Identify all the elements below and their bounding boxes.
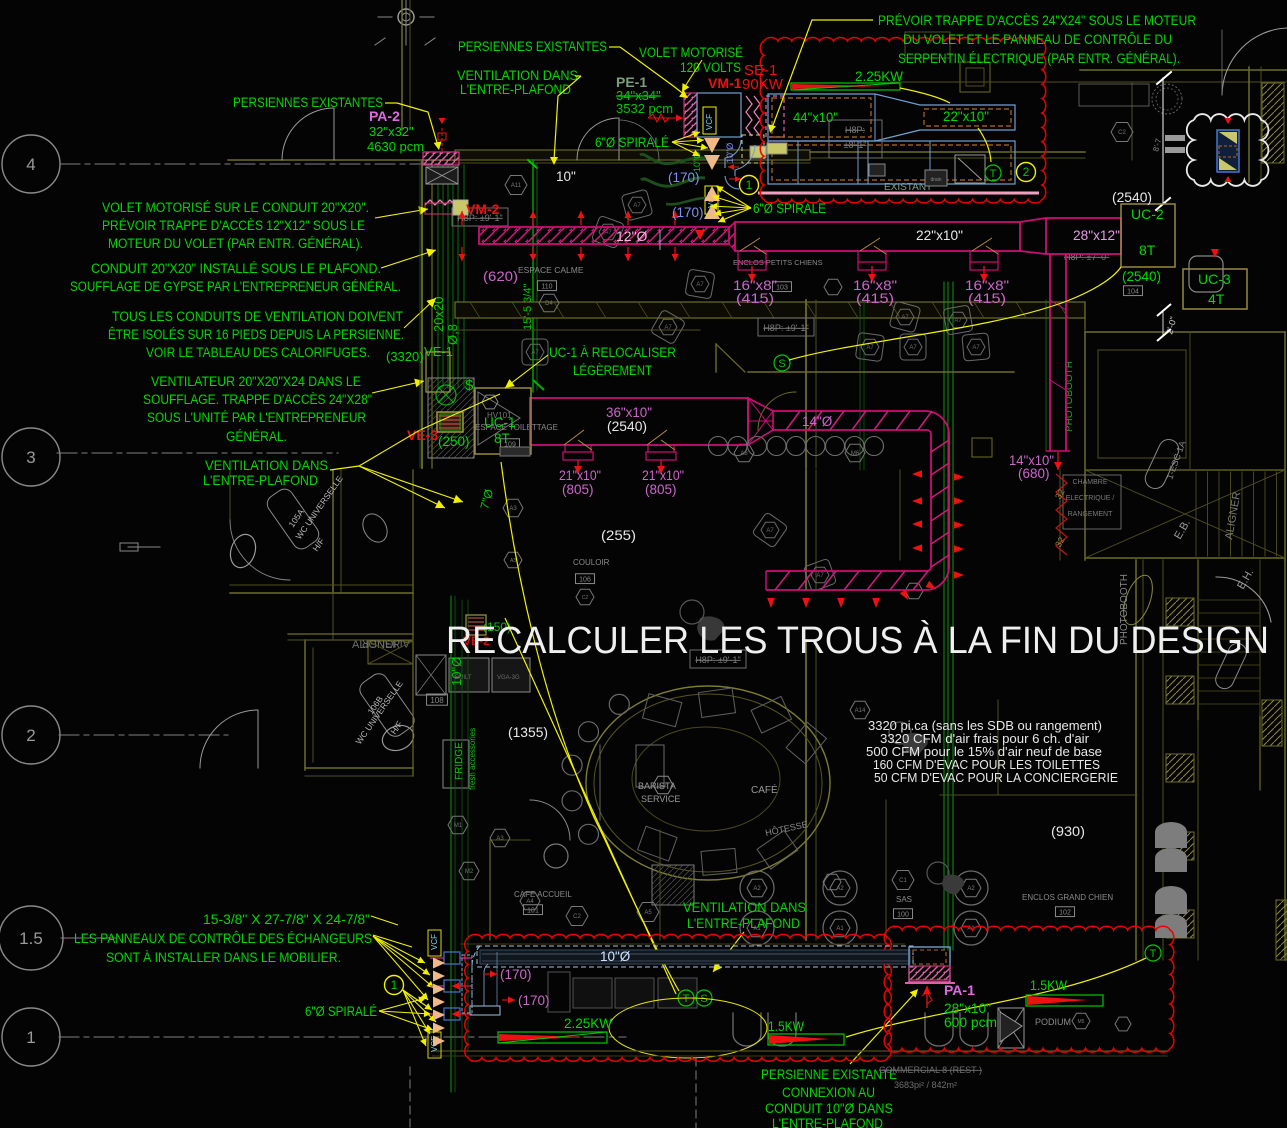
svg-text:L'ENTRE-PLAFOND: L'ENTRE-PLAFOND xyxy=(203,473,318,488)
svg-text:fresh accessories: fresh accessories xyxy=(468,728,477,790)
svg-text:D4: D4 xyxy=(545,301,553,307)
svg-text:VENTILATION DANS: VENTILATION DANS xyxy=(457,68,578,83)
svg-text:ESPACE CALME: ESPACE CALME xyxy=(518,265,584,275)
svg-text:L'ENTRE-PLAFOND: L'ENTRE-PLAFOND xyxy=(772,1116,883,1128)
svg-text:T: T xyxy=(990,168,997,180)
svg-text:CONDUIT 10"Ø DANS: CONDUIT 10"Ø DANS xyxy=(765,1101,893,1116)
svg-text:2.25KW: 2.25KW xyxy=(855,69,903,84)
svg-text:UC-1 À RELOCALISER: UC-1 À RELOCALISER xyxy=(549,345,676,360)
svg-text:8T: 8T xyxy=(1139,242,1156,258)
svg-text:6"Ø SPIRALE: 6"Ø SPIRALE xyxy=(753,201,826,216)
svg-text:RANGEMENT: RANGEMENT xyxy=(1068,511,1113,518)
svg-text:22"x10": 22"x10" xyxy=(943,109,989,124)
svg-text:10"Ø: 10"Ø xyxy=(600,949,631,964)
svg-text:SONT À INSTALLER DANS LE MOBIL: SONT À INSTALLER DANS LE MOBILIER. xyxy=(106,950,341,965)
svg-text:1.5KW: 1.5KW xyxy=(1030,978,1067,993)
svg-text:ELECTRIQUE /: ELECTRIQUE / xyxy=(1066,495,1115,502)
svg-text:VENTILATEUR 20"X20"X24 DANS LE: VENTILATEUR 20"X20"X24 DANS LE xyxy=(151,374,361,389)
svg-text:(170): (170) xyxy=(500,967,532,982)
svg-text:RECALCULER LES TROUS À LA FIN: RECALCULER LES TROUS À LA FIN DU DESIGN xyxy=(446,619,1269,662)
svg-text:A7: A7 xyxy=(816,573,824,579)
svg-text:A3: A3 xyxy=(509,506,517,512)
svg-text:4: 4 xyxy=(26,155,35,174)
svg-text:10": 10" xyxy=(556,169,576,184)
svg-text:108: 108 xyxy=(430,696,444,705)
svg-text:VOLET MOTORISÉ SUR LE CONDUIT: VOLET MOTORISÉ SUR LE CONDUIT 20"X20". xyxy=(102,200,369,215)
svg-text:(255): (255) xyxy=(601,528,636,543)
svg-text:1.5: 1.5 xyxy=(19,929,43,948)
svg-text:(1355): (1355) xyxy=(508,725,548,740)
svg-text:6"Ø SPIRALÉ: 6"Ø SPIRALÉ xyxy=(595,135,669,150)
svg-text:PA-1: PA-1 xyxy=(944,982,975,998)
svg-text:S: S xyxy=(778,358,785,370)
svg-text:CAFE ACCUEIL: CAFE ACCUEIL xyxy=(514,890,572,899)
svg-text:PODIUM: PODIUM xyxy=(1035,1017,1071,1027)
svg-text:A7: A7 xyxy=(664,325,672,331)
svg-text:drain: drain xyxy=(930,177,941,183)
svg-text:8T: 8T xyxy=(494,431,510,446)
svg-text:A1: A1 xyxy=(836,926,844,932)
svg-text:M1: M1 xyxy=(454,823,463,829)
svg-text:2: 2 xyxy=(1023,165,1030,179)
svg-text:C2: C2 xyxy=(573,914,581,920)
svg-text:A3: A3 xyxy=(510,558,516,564)
svg-text:CONNEXION AU: CONNEXION AU xyxy=(782,1085,875,1100)
svg-text:SERPENTIN ÉLECTRIQUE (PAR ENTR: SERPENTIN ÉLECTRIQUE (PAR ENTR. GÉNÉRAL)… xyxy=(898,51,1180,66)
svg-text:ÊTRE ISOLÉS SUR 16 PIEDS DEPUI: ÊTRE ISOLÉS SUR 16 PIEDS DEPUIS LA PERSI… xyxy=(108,327,404,342)
svg-text:UC-2: UC-2 xyxy=(1131,206,1164,222)
svg-text:(415): (415) xyxy=(736,291,774,306)
svg-text:A2: A2 xyxy=(967,886,975,892)
svg-text:C2: C2 xyxy=(659,783,667,789)
svg-text:(250): (250) xyxy=(438,434,470,449)
svg-text:(2540): (2540) xyxy=(1112,190,1152,205)
svg-text:VENTILATION DANS: VENTILATION DANS xyxy=(205,458,328,473)
svg-text:TOUS LES CONDUITS DE VENTILATI: TOUS LES CONDUITS DE VENTILATION DOIVENT xyxy=(112,309,403,324)
svg-text:22"x10": 22"x10" xyxy=(916,228,963,243)
svg-text:SAS: SAS xyxy=(896,895,912,904)
svg-text:GÉNÉRAL.: GÉNÉRAL. xyxy=(226,429,287,444)
svg-text:A7: A7 xyxy=(633,203,641,209)
svg-text:VGA-3G: VGA-3G xyxy=(497,675,520,681)
svg-text:110: 110 xyxy=(541,284,552,291)
svg-text:28"x10": 28"x10" xyxy=(944,1001,991,1016)
svg-text:A11: A11 xyxy=(511,183,522,189)
svg-text:90KW: 90KW xyxy=(742,76,784,93)
svg-text:6"Ø SPIRALÉ: 6"Ø SPIRALÉ xyxy=(305,1004,377,1019)
svg-text:FRIDGE: FRIDGE xyxy=(454,742,465,780)
svg-text:A7: A7 xyxy=(696,282,704,288)
svg-text:SOUS L'UNITÉ PAR L'ENTREPRENEU: SOUS L'UNITÉ PAR L'ENTREPRENEUR xyxy=(147,410,366,425)
svg-text:UC-1: UC-1 xyxy=(484,415,516,430)
svg-text:36"x10": 36"x10" xyxy=(606,405,652,420)
svg-text:1.5KW: 1.5KW xyxy=(768,1019,804,1034)
svg-text:CHAMBRE: CHAMBRE xyxy=(1072,479,1107,486)
svg-text:SERVICE: SERVICE xyxy=(641,794,680,804)
svg-text:A14: A14 xyxy=(855,708,866,714)
svg-text:2: 2 xyxy=(26,726,35,745)
svg-text:L'ENTRE-PLAFOND: L'ENTRE-PLAFOND xyxy=(687,916,800,931)
svg-text:120 VOLTS: 120 VOLTS xyxy=(680,60,741,75)
svg-text:PERSIENNES EXISTANTES: PERSIENNES EXISTANTES xyxy=(458,39,607,54)
svg-text:M5: M5 xyxy=(1078,1019,1085,1025)
svg-text:±8'-1": ±8'-1" xyxy=(844,140,867,150)
svg-text:50 CFM D'EVAC POUR LA CONCIERG: 50 CFM D'EVAC POUR LA CONCIERGERIE xyxy=(874,770,1118,785)
svg-text:(170): (170) xyxy=(668,170,700,185)
svg-text:(680): (680) xyxy=(1018,466,1050,481)
svg-text:3: 3 xyxy=(26,448,35,467)
svg-text:ENCLOS GRAND CHIEN: ENCLOS GRAND CHIEN xyxy=(1022,893,1113,902)
svg-text:SOUFFLAGE DE GYPSE PAR L'ENTRE: SOUFFLAGE DE GYPSE PAR L'ENTREPRENEUR GÉ… xyxy=(70,279,401,294)
svg-text:VOIR LE TABLEAU DES CALORIFUGE: VOIR LE TABLEAU DES CALORIFUGES. xyxy=(146,345,370,360)
svg-text:3683pi² / 842m²: 3683pi² / 842m² xyxy=(894,1080,957,1090)
svg-text:(805): (805) xyxy=(645,482,677,497)
svg-text:CAFÉ: CAFÉ xyxy=(751,783,778,796)
svg-text:PRÉVOIR TRAPPE D'ACCÈS 24"X24": PRÉVOIR TRAPPE D'ACCÈS 24"X24" SOUS LE M… xyxy=(878,13,1196,28)
svg-text:(2540): (2540) xyxy=(1122,269,1161,284)
svg-text:102: 102 xyxy=(1059,910,1071,917)
svg-text:PRÉVOIR TRAPPE D'ACCÈS 12"X12": PRÉVOIR TRAPPE D'ACCÈS 12"X12" SOUS LE xyxy=(102,218,365,233)
svg-text:(170): (170) xyxy=(518,993,550,1008)
svg-text:15'-5 3/4": 15'-5 3/4" xyxy=(522,284,534,330)
svg-text:COMMERCIAL 8 (REST ): COMMERCIAL 8 (REST ) xyxy=(879,1065,982,1075)
svg-text:101: 101 xyxy=(527,908,539,915)
svg-text:PERSIENNE EXISTANTE: PERSIENNE EXISTANTE xyxy=(761,1067,897,1082)
svg-text:103: 103 xyxy=(776,285,788,292)
svg-text:A7: A7 xyxy=(972,345,980,351)
svg-text:PA-2: PA-2 xyxy=(369,108,400,124)
svg-text:DU VOLET ET LE PANNEAU DE CONT: DU VOLET ET LE PANNEAU DE CONTRÔLE DU xyxy=(903,32,1172,47)
svg-text:100: 100 xyxy=(897,912,909,919)
svg-text:LES PANNEAUX DE CONTRÔLE DES É: LES PANNEAUX DE CONTRÔLE DES ÉCHANGEURS xyxy=(74,931,372,946)
svg-text:10"Ø: 10"Ø xyxy=(725,143,735,163)
svg-text:C2: C2 xyxy=(1118,130,1126,136)
svg-text:A3: A3 xyxy=(496,836,504,842)
svg-text:(930): (930) xyxy=(1051,824,1085,839)
svg-text:COULOIR: COULOIR xyxy=(573,558,610,567)
svg-text:A4: A4 xyxy=(526,899,534,905)
svg-text:PERSIENNES EXISTANTES: PERSIENNES EXISTANTES xyxy=(233,95,383,110)
svg-text:(3320): (3320) xyxy=(386,349,424,364)
svg-text:(805): (805) xyxy=(562,482,594,497)
svg-text:VCF: VCF xyxy=(430,934,439,950)
svg-text:C2: C2 xyxy=(582,595,589,601)
svg-text:4630 pcm: 4630 pcm xyxy=(367,139,424,154)
svg-text:CONDUIT 20"X20" INSTALLÉ SOUS: CONDUIT 20"X20" INSTALLÉ SOUS LE PLAFOND… xyxy=(91,261,381,276)
svg-text:A7: A7 xyxy=(766,528,774,534)
svg-text:VENTILATION DANS: VENTILATION DANS xyxy=(683,900,806,915)
svg-text:SOUFFLAGE. TRAPPE D'ACCÈS 24"X: SOUFFLAGE. TRAPPE D'ACCÈS 24"X28" xyxy=(143,392,372,407)
svg-text:1: 1 xyxy=(26,1028,35,1047)
svg-text:1: 1 xyxy=(391,978,398,992)
svg-text:C1: C1 xyxy=(899,878,907,884)
svg-text:A7: A7 xyxy=(954,318,962,324)
svg-text:H8P:: H8P: xyxy=(845,125,865,135)
svg-text:L'ENTRE-PLAFOND: L'ENTRE-PLAFOND xyxy=(460,82,571,97)
svg-text:UC-3: UC-3 xyxy=(1198,271,1231,287)
svg-text:A7: A7 xyxy=(866,345,874,351)
svg-text:Ø,8: Ø,8 xyxy=(445,324,460,345)
svg-text:21"x10": 21"x10" xyxy=(642,468,684,483)
svg-text:(415): (415) xyxy=(968,291,1006,306)
svg-text:600 pcm: 600 pcm xyxy=(944,1015,997,1030)
svg-text:MOTEUR DU VOLET (PAR ENTR. GÉN: MOTEUR DU VOLET (PAR ENTR. GÉNÉRAL). xyxy=(108,236,363,251)
svg-text:(170): (170) xyxy=(672,205,704,220)
svg-text:A2: A2 xyxy=(753,886,761,892)
svg-text:T: T xyxy=(1150,948,1157,960)
svg-text:2.25KW: 2.25KW xyxy=(564,1016,612,1031)
svg-text:1: 1 xyxy=(746,178,753,192)
svg-text:T: T xyxy=(683,993,690,1005)
svg-text:VM-1: VM-1 xyxy=(708,75,742,91)
svg-text:28"x12": 28"x12" xyxy=(1073,228,1120,243)
svg-text:$: $ xyxy=(465,377,474,394)
svg-text:VOLET MOTORISÉ: VOLET MOTORISÉ xyxy=(639,45,743,60)
svg-text:32"x32": 32"x32" xyxy=(369,124,414,139)
svg-text:3532 pcm: 3532 pcm xyxy=(616,101,673,116)
svg-text:44"x10": 44"x10" xyxy=(793,110,838,125)
svg-text:12"Ø: 12"Ø xyxy=(616,228,648,244)
svg-text:104: 104 xyxy=(1127,289,1139,296)
svg-text:LÉGÈREMENT: LÉGÈREMENT xyxy=(573,363,652,378)
svg-text:4T: 4T xyxy=(1208,291,1225,307)
svg-text:A5: A5 xyxy=(644,910,652,916)
svg-text:A7: A7 xyxy=(909,345,917,351)
svg-text:106: 106 xyxy=(579,577,591,584)
svg-text:(415): (415) xyxy=(856,291,894,306)
svg-text:15-3/8" X 27-7/8" X 24-7/8": 15-3/8" X 27-7/8" X 24-7/8" xyxy=(203,912,370,927)
svg-text:ALIGNER: ALIGNER xyxy=(362,637,410,649)
svg-text:A7: A7 xyxy=(531,350,539,356)
svg-text:VCF: VCF xyxy=(705,114,714,130)
svg-text:A7: A7 xyxy=(901,315,909,321)
svg-text:VM-2: VM-2 xyxy=(466,201,500,217)
svg-text:(2540): (2540) xyxy=(607,419,647,434)
svg-text:21"x10": 21"x10" xyxy=(559,468,601,483)
svg-text:M2: M2 xyxy=(465,869,474,875)
svg-text:(620): (620) xyxy=(483,269,518,284)
svg-text:14"Ø: 14"Ø xyxy=(802,414,833,429)
svg-text:H8P: ±9'-1": H8P: ±9'-1" xyxy=(763,323,808,333)
